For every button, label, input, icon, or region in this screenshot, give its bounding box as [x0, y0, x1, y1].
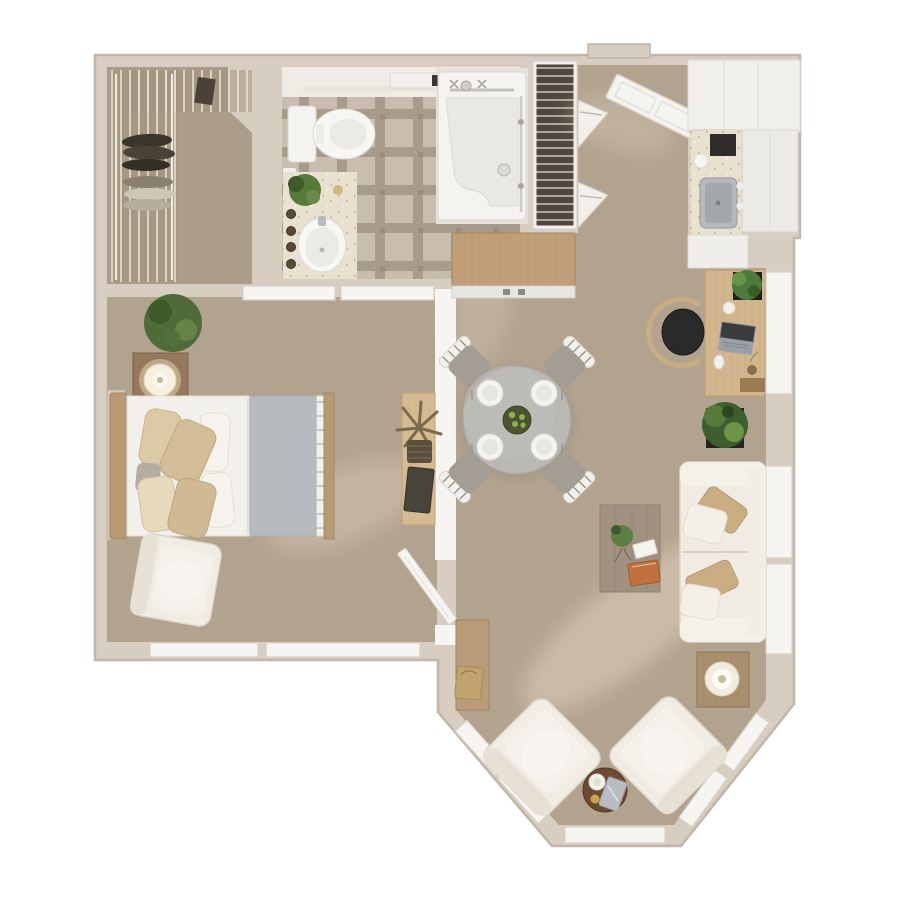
kitchen-bowl: [694, 154, 708, 168]
bedroom-window-bottom-left: [150, 643, 258, 657]
desk-tray: [740, 378, 765, 392]
kitchen-sink-drain: [716, 201, 721, 206]
centerpiece-bowl: [503, 406, 531, 434]
clothes-light-2: [124, 188, 176, 200]
toilet-seat-inner: [329, 119, 367, 149]
coffee-table: [600, 505, 660, 592]
shelf-box: [194, 77, 215, 105]
door-handle-2: [518, 183, 524, 189]
mouse: [714, 355, 724, 369]
sink-drain: [320, 248, 325, 253]
knob-4: [287, 260, 296, 269]
bay-lamp-finial: [718, 675, 726, 683]
pencil-cup: [747, 365, 757, 375]
bedroom-plant-mid: [164, 330, 180, 346]
desk-window: [766, 272, 792, 394]
bedroom-plant-dark: [148, 300, 172, 324]
green-2: [519, 414, 525, 420]
floor-plan-image: [0, 0, 900, 900]
dresser-handle-1: [503, 289, 510, 295]
desk-plant-dark: [748, 285, 760, 297]
green-3: [512, 421, 518, 427]
console-tray: [404, 467, 434, 513]
plate-3-inner: [482, 439, 498, 455]
chair-seat: [662, 309, 704, 355]
lower-cabinet: [688, 235, 748, 268]
table-cup-inner: [593, 778, 601, 786]
dresser-front: [452, 286, 575, 298]
linen-wire-shelves: [535, 63, 575, 227]
knob-1: [287, 210, 296, 219]
lamp-side-table: [697, 652, 749, 707]
kitchen-faucet-2: [737, 203, 744, 210]
plate-4-inner: [536, 439, 552, 455]
desk-plant-light: [732, 272, 746, 286]
coffee-table-plant-dark: [611, 525, 621, 535]
upper-cabinets: [688, 60, 800, 132]
gold-cup: [333, 185, 343, 195]
plate-1-inner: [482, 385, 498, 401]
bedroom-plant: [144, 294, 202, 352]
faucet: [318, 216, 326, 226]
bay-window-bottom: [565, 827, 665, 843]
sink-basin: [305, 227, 339, 267]
plant-foliage-light: [306, 190, 320, 204]
console-table: [397, 393, 441, 525]
floor-plan-stage: [0, 0, 900, 900]
plate-2-inner: [536, 385, 552, 401]
sofa-backrest: [746, 468, 766, 636]
door-handle-1: [518, 119, 524, 125]
green-1: [509, 412, 515, 418]
kitchen-faucet-1: [737, 183, 744, 190]
bedroom-divider-wall: [435, 289, 456, 560]
vanity: [283, 172, 357, 279]
desk-plant: [732, 270, 762, 300]
knob-3: [287, 243, 296, 252]
walk-in-shower: [438, 72, 526, 220]
sofa-pillow-white-2: [679, 583, 722, 621]
coffee-maker: [710, 134, 736, 156]
footboard: [324, 393, 334, 539]
gray-throw: [250, 396, 316, 536]
clothes-dark-3: [122, 159, 170, 171]
floor-plant-light: [724, 422, 744, 442]
dresser-grain: [452, 233, 575, 286]
desk-cup: [723, 302, 735, 314]
sofa-window-lower: [766, 564, 792, 654]
living-plant: [702, 402, 748, 448]
plant-foliage-dark: [288, 176, 304, 192]
bedroom-armchair: [129, 532, 223, 628]
lamp-finial: [157, 377, 163, 383]
shower-drain: [498, 164, 510, 176]
sofa: [679, 462, 766, 642]
clothes-light-1: [123, 176, 173, 188]
green-4: [520, 422, 525, 427]
toilet-hinge: [316, 124, 324, 144]
floor-plant-mid: [704, 405, 726, 427]
sofa-window-upper: [766, 466, 792, 558]
knob-2: [287, 227, 296, 236]
side-console: [455, 620, 489, 710]
headboard: [110, 393, 127, 539]
floor-plant-dark: [722, 406, 734, 418]
wall-stub-top: [588, 44, 650, 58]
bed: [110, 393, 334, 540]
shower-head: [461, 81, 471, 91]
hall-dresser: [452, 233, 575, 298]
laptop: [718, 322, 756, 355]
bedroom-window-bottom-right: [266, 643, 420, 657]
bed-pillows: [135, 407, 236, 540]
orange-book: [628, 560, 661, 586]
wire-shelf-left: [110, 70, 178, 282]
round-side-table: [583, 768, 628, 812]
divider-wall-stub: [435, 625, 456, 645]
clothes-light-3: [123, 199, 171, 211]
dresser-handle-2: [518, 289, 525, 295]
toilet-tank: [288, 106, 316, 162]
bedroom-window-top-right: [341, 286, 434, 300]
gold-coaster: [591, 795, 600, 804]
bedroom-window-top-left: [243, 286, 335, 300]
